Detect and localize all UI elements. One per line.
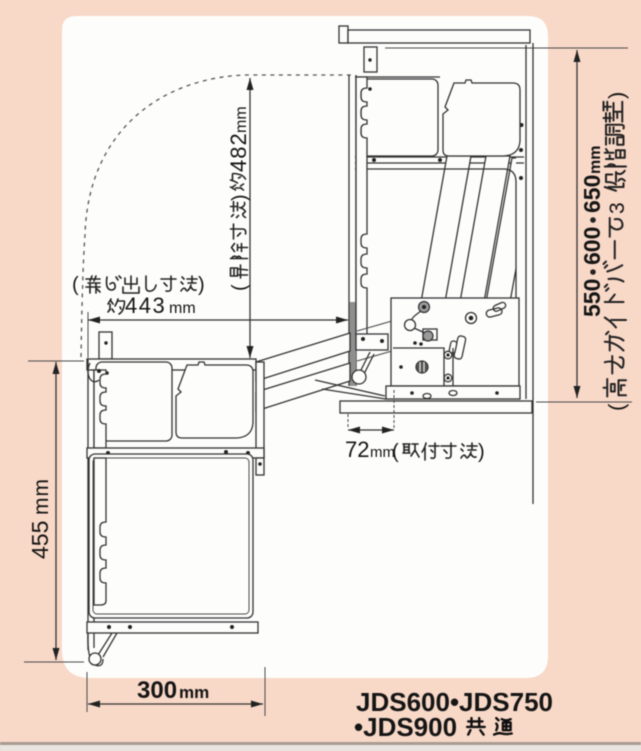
svg-text:(: (	[392, 441, 399, 463]
svg-text:): )	[198, 274, 205, 296]
svg-text:): )	[478, 441, 485, 463]
svg-text:): )	[604, 92, 629, 99]
svg-text:72: 72	[345, 437, 369, 462]
svg-text:(: (	[604, 403, 629, 411]
svg-text:600: 600	[579, 227, 605, 265]
svg-text:): )	[229, 194, 251, 201]
svg-text:3: 3	[606, 202, 629, 214]
svg-text:482: 482	[226, 132, 251, 172]
svg-text:(: (	[229, 284, 251, 291]
svg-text:mm: mm	[179, 683, 209, 702]
svg-text:mm: mm	[169, 300, 196, 317]
svg-text:300: 300	[137, 677, 177, 704]
svg-text:mm: mm	[30, 478, 53, 515]
svg-text:•JDS900: •JDS900	[354, 712, 457, 742]
svg-text:650: 650	[579, 175, 605, 213]
svg-text:443: 443	[125, 293, 166, 318]
svg-text:mm: mm	[233, 106, 250, 133]
svg-text:mm: mm	[587, 146, 604, 174]
svg-text:455: 455	[27, 521, 53, 559]
svg-text:(: (	[72, 274, 79, 296]
svg-text:550: 550	[579, 279, 605, 317]
